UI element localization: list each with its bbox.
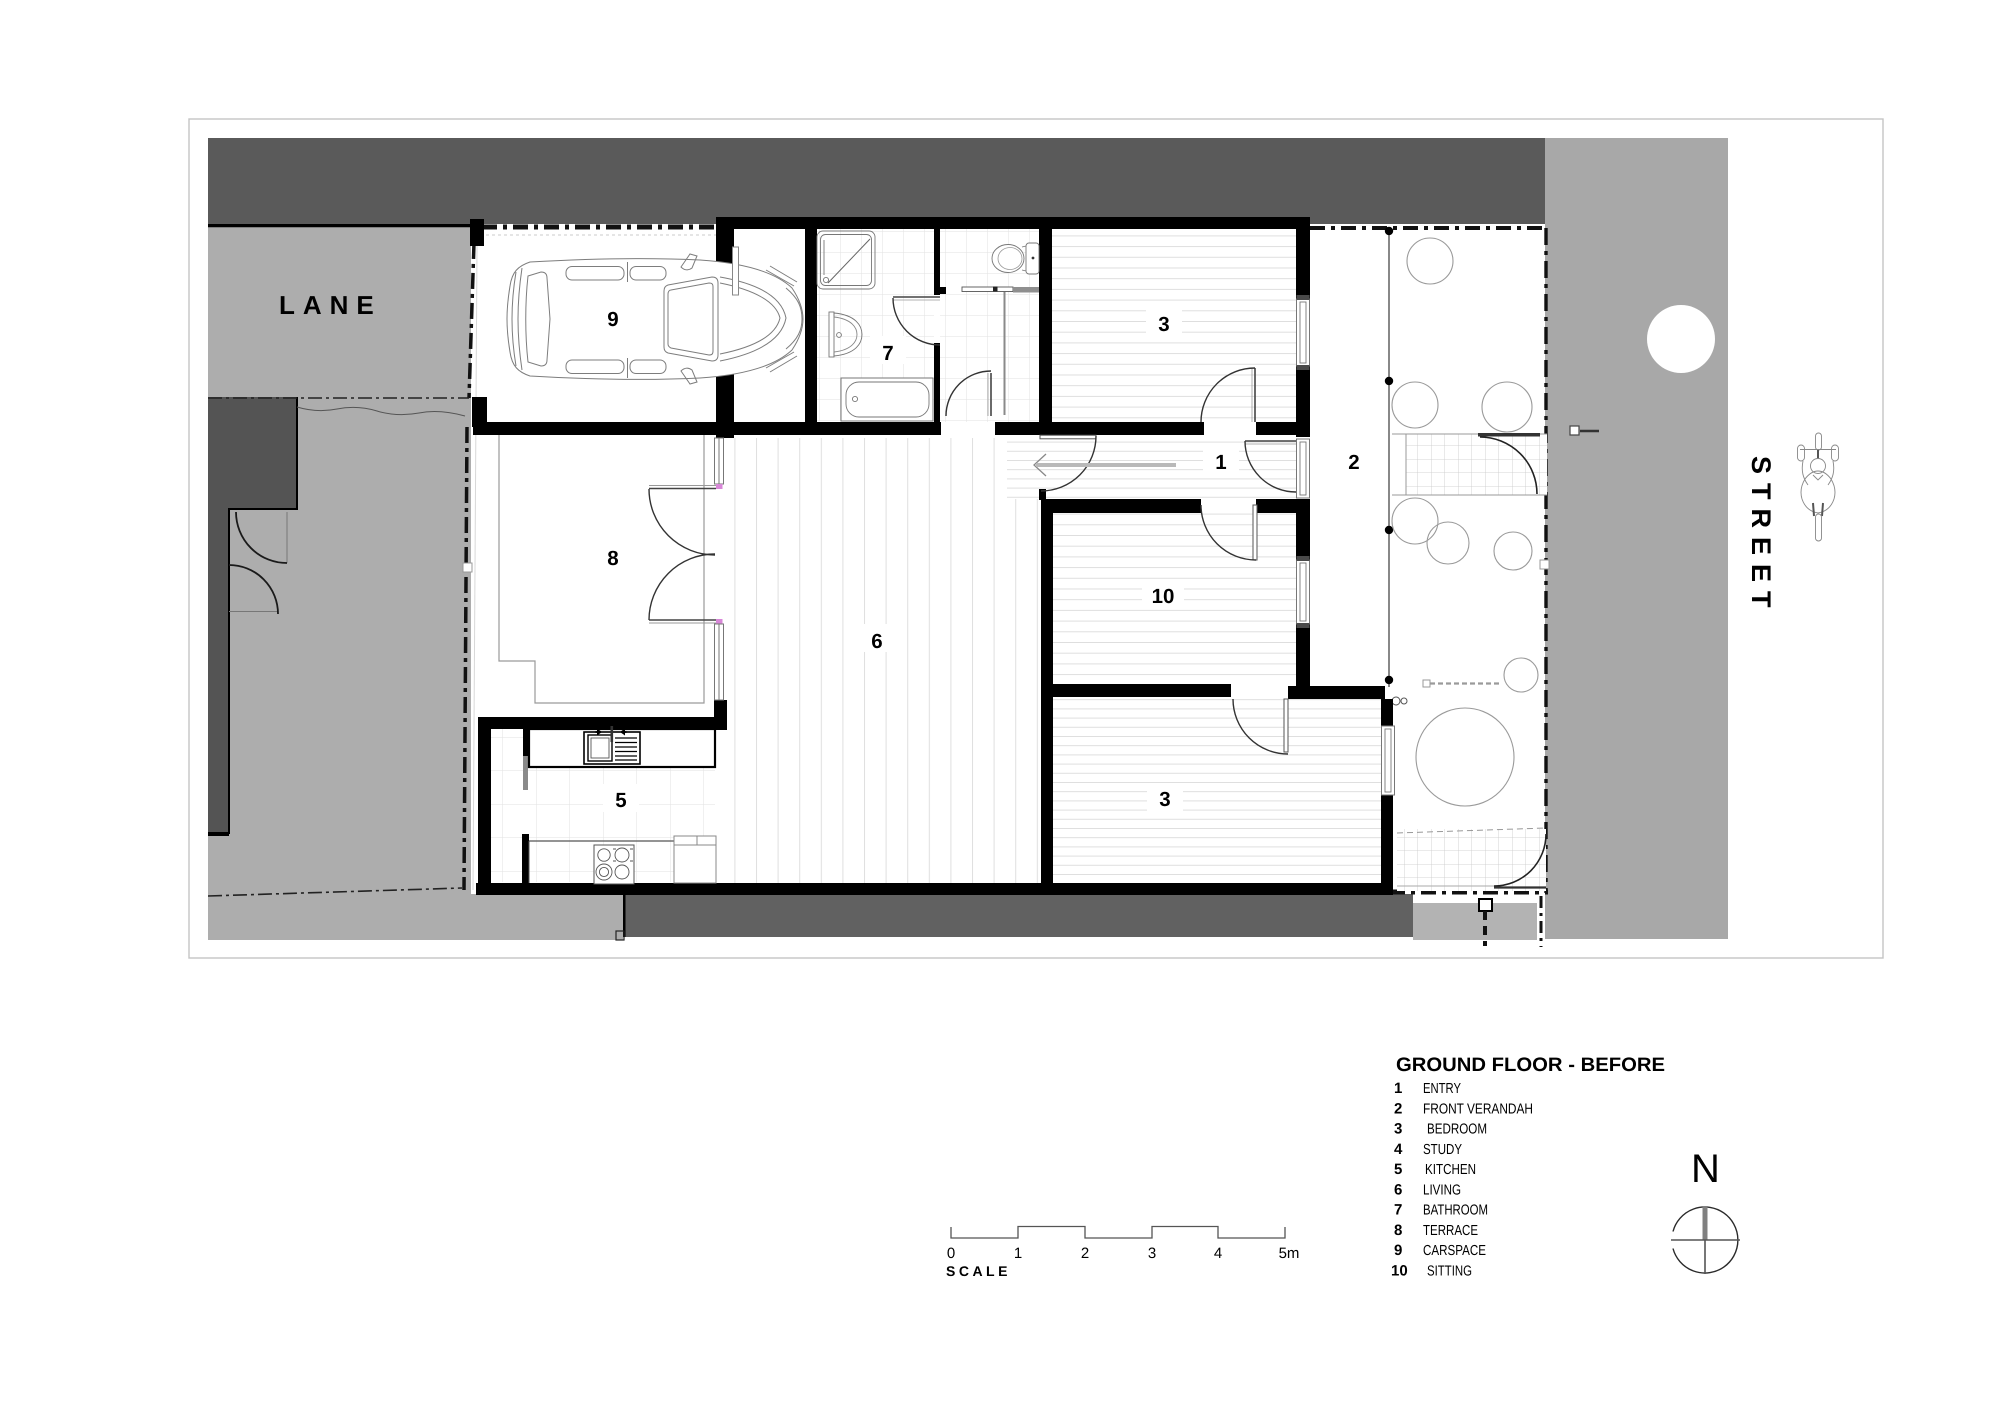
svg-text:STREET: STREET — [1746, 456, 1776, 617]
svg-text:3: 3 — [1394, 1121, 1402, 1138]
svg-text:TERRACE: TERRACE — [1423, 1223, 1478, 1239]
svg-text:4: 4 — [1214, 1245, 1222, 1262]
svg-text:5m: 5m — [1279, 1245, 1300, 1262]
svg-text:LIVING: LIVING — [1423, 1182, 1461, 1198]
svg-text:10: 10 — [1391, 1263, 1408, 1280]
svg-text:5: 5 — [615, 789, 626, 812]
svg-text:5: 5 — [1394, 1161, 1402, 1178]
svg-text:10: 10 — [1152, 585, 1175, 608]
svg-text:1: 1 — [1394, 1080, 1402, 1097]
svg-text:1: 1 — [1215, 451, 1226, 474]
svg-text:CARSPACE: CARSPACE — [1423, 1243, 1486, 1259]
svg-text:2: 2 — [1394, 1100, 1402, 1117]
svg-text:N: N — [1691, 1147, 1720, 1191]
svg-text:7: 7 — [882, 342, 893, 365]
svg-text:6: 6 — [1394, 1181, 1402, 1198]
svg-text:3: 3 — [1158, 313, 1169, 336]
svg-text:KITCHEN: KITCHEN — [1425, 1162, 1476, 1178]
svg-text:2: 2 — [1348, 451, 1359, 474]
svg-text:1: 1 — [1014, 1245, 1022, 1262]
svg-text:8: 8 — [607, 547, 618, 570]
svg-text:6: 6 — [871, 630, 882, 653]
svg-text:2: 2 — [1081, 1245, 1089, 1262]
svg-text:FRONT VERANDAH: FRONT VERANDAH — [1423, 1101, 1533, 1117]
svg-text:8: 8 — [1394, 1222, 1402, 1239]
svg-text:3: 3 — [1159, 788, 1170, 811]
svg-text:SITTING: SITTING — [1427, 1264, 1472, 1280]
svg-text:LANE: LANE — [279, 290, 382, 320]
svg-text:9: 9 — [1394, 1242, 1402, 1259]
svg-text:BATHROOM: BATHROOM — [1423, 1203, 1488, 1219]
svg-text:3: 3 — [1148, 1245, 1156, 1262]
svg-text:STUDY: STUDY — [1423, 1142, 1462, 1158]
svg-text:SCALE: SCALE — [946, 1263, 1011, 1279]
svg-text:7: 7 — [1394, 1202, 1402, 1219]
svg-text:0: 0 — [947, 1245, 955, 1262]
svg-text:GROUND FLOOR - BEFORE: GROUND FLOOR - BEFORE — [1396, 1054, 1665, 1076]
svg-text:BEDROOM: BEDROOM — [1427, 1122, 1487, 1138]
svg-text:9: 9 — [607, 308, 618, 331]
svg-text:4: 4 — [1394, 1141, 1403, 1158]
svg-text:ENTRY: ENTRY — [1423, 1081, 1461, 1097]
